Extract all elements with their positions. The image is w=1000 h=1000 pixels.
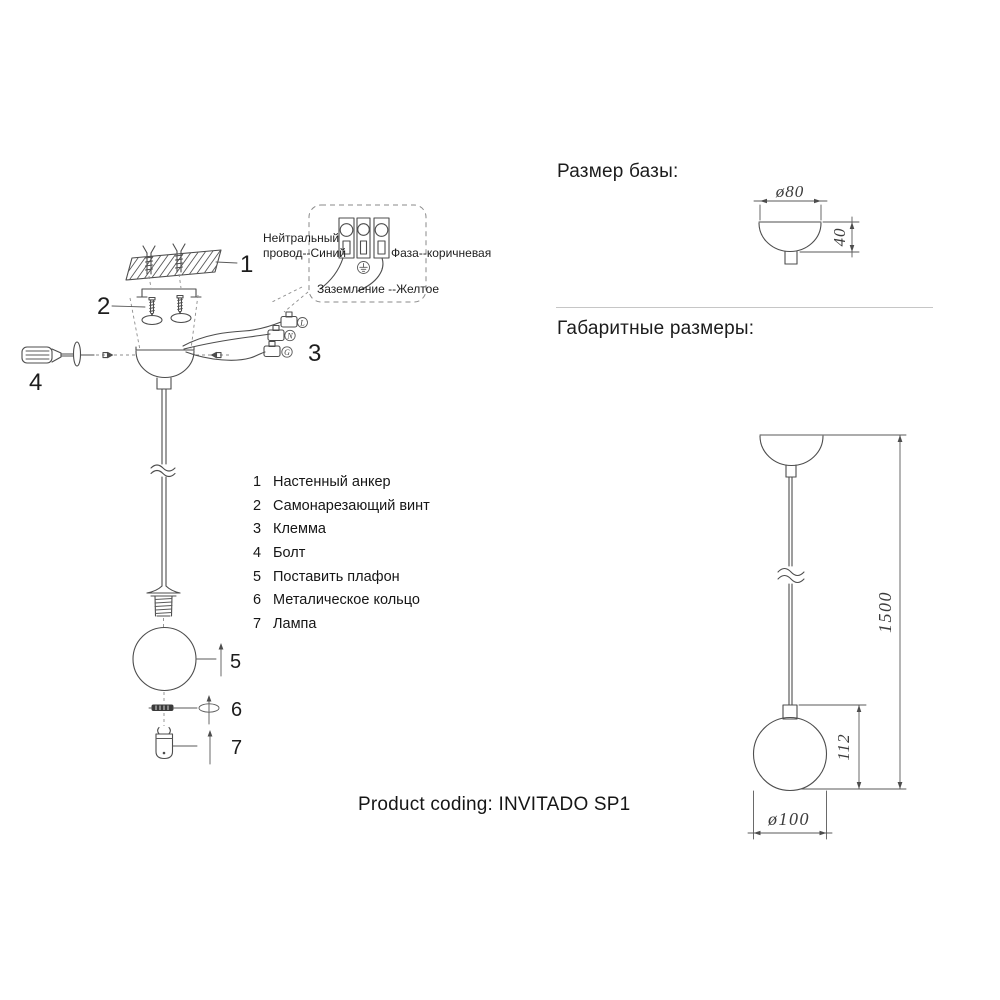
parts-list-item: 5 Поставить плафон <box>253 565 430 589</box>
parts-list: 1 Настенный анкер 2 Самонарезающий винт … <box>253 470 430 636</box>
overall-dimension-drawing: 1500 112 ø100 <box>730 420 930 850</box>
ground-wire-label: Заземление --Желтое <box>317 282 439 296</box>
shade-sphere: 5 <box>133 628 241 704</box>
part-number: 2 <box>253 498 265 514</box>
base-height-dimension: 40 <box>800 217 859 257</box>
parts-list-item: 1 Настенный анкер <box>253 470 430 494</box>
callout-2-leader <box>112 306 145 307</box>
wiring-diagram-inset: Нейтральный провод--Синий Фаза--коричнев… <box>263 205 491 302</box>
screwdriver-icon: 4 <box>22 342 94 396</box>
part-name: Самонарезающий винт <box>273 498 430 514</box>
terminal-ground-label: G <box>284 348 290 357</box>
terminal-clamps: L N G 3 <box>264 287 321 367</box>
canopy <box>136 347 194 389</box>
phase-wire-label: Фаза--коричневая <box>391 246 491 260</box>
part-name: Настенный анкер <box>273 474 391 490</box>
section-divider <box>556 307 933 308</box>
part-name: Металическое кольцо <box>273 592 420 608</box>
callout-5: 5 <box>230 651 241 673</box>
metal-ring: 6 <box>149 695 242 726</box>
pendant-outline <box>754 435 827 791</box>
base-diameter-value: ø80 <box>775 182 805 201</box>
shade-height-value: 112 <box>834 733 853 760</box>
callout-7: 7 <box>231 737 242 759</box>
callout-1: 1 <box>240 251 253 278</box>
shade-diameter-dimension: ø100 <box>748 791 832 839</box>
section-title-overall-size: Габаритные размеры: <box>557 318 754 340</box>
parts-list-item: 3 Клемма <box>253 517 430 541</box>
base-diameter-dimension: ø80 <box>754 182 827 220</box>
callout-6: 6 <box>231 699 242 721</box>
part-number: 1 <box>253 474 265 490</box>
shade-height-dimension: 112 <box>799 705 866 789</box>
part-name: Болт <box>273 545 305 561</box>
parts-list-item: 7 Лампа <box>253 612 430 636</box>
instruction-sheet: 1 <box>0 0 1000 1000</box>
part-number: 6 <box>253 592 265 608</box>
part-name: Поставить плафон <box>273 569 400 585</box>
wires <box>183 322 281 360</box>
shade-diameter-value: ø100 <box>767 809 810 829</box>
callout-2: 2 <box>97 293 110 320</box>
parts-list-item: 2 Самонарезающий винт <box>253 494 430 518</box>
base-canopy-outline <box>759 222 821 264</box>
part-number: 5 <box>253 569 265 585</box>
parts-list-item: 6 Металическое кольцо <box>253 588 430 612</box>
ceiling-plate: 1 <box>104 244 253 286</box>
base-dimension-drawing: ø80 40 <box>730 175 890 275</box>
callout-4: 4 <box>29 369 42 396</box>
terminal-live-label: L <box>299 318 305 327</box>
part-number: 3 <box>253 521 265 537</box>
suspension-cord <box>151 389 175 586</box>
part-name: Клемма <box>273 521 326 537</box>
bolt-icon <box>96 352 230 359</box>
terminal-neutral-label: N <box>286 331 293 340</box>
section-title-base-size: Размер базы: <box>557 161 678 183</box>
total-height-value: 1500 <box>875 591 895 633</box>
part-number: 4 <box>253 545 265 561</box>
parts-list-item: 4 Болт <box>253 541 430 565</box>
part-number: 7 <box>253 616 265 632</box>
neutral-wire-label-line1: Нейтральный <box>263 231 339 245</box>
neutral-wire-label-line2: провод--Синий <box>263 246 346 260</box>
mounting-bracket: 2 <box>97 274 201 350</box>
base-height-value: 40 <box>830 228 849 247</box>
ground-symbol-icon <box>358 262 370 274</box>
callout-1-leader <box>216 262 237 263</box>
callout-3: 3 <box>308 340 321 367</box>
bulb-icon: 7 <box>156 728 242 765</box>
product-coding-text: Product coding: INVITADO SP1 <box>358 794 630 816</box>
lamp-socket <box>147 586 180 627</box>
part-name: Лампа <box>273 616 316 632</box>
